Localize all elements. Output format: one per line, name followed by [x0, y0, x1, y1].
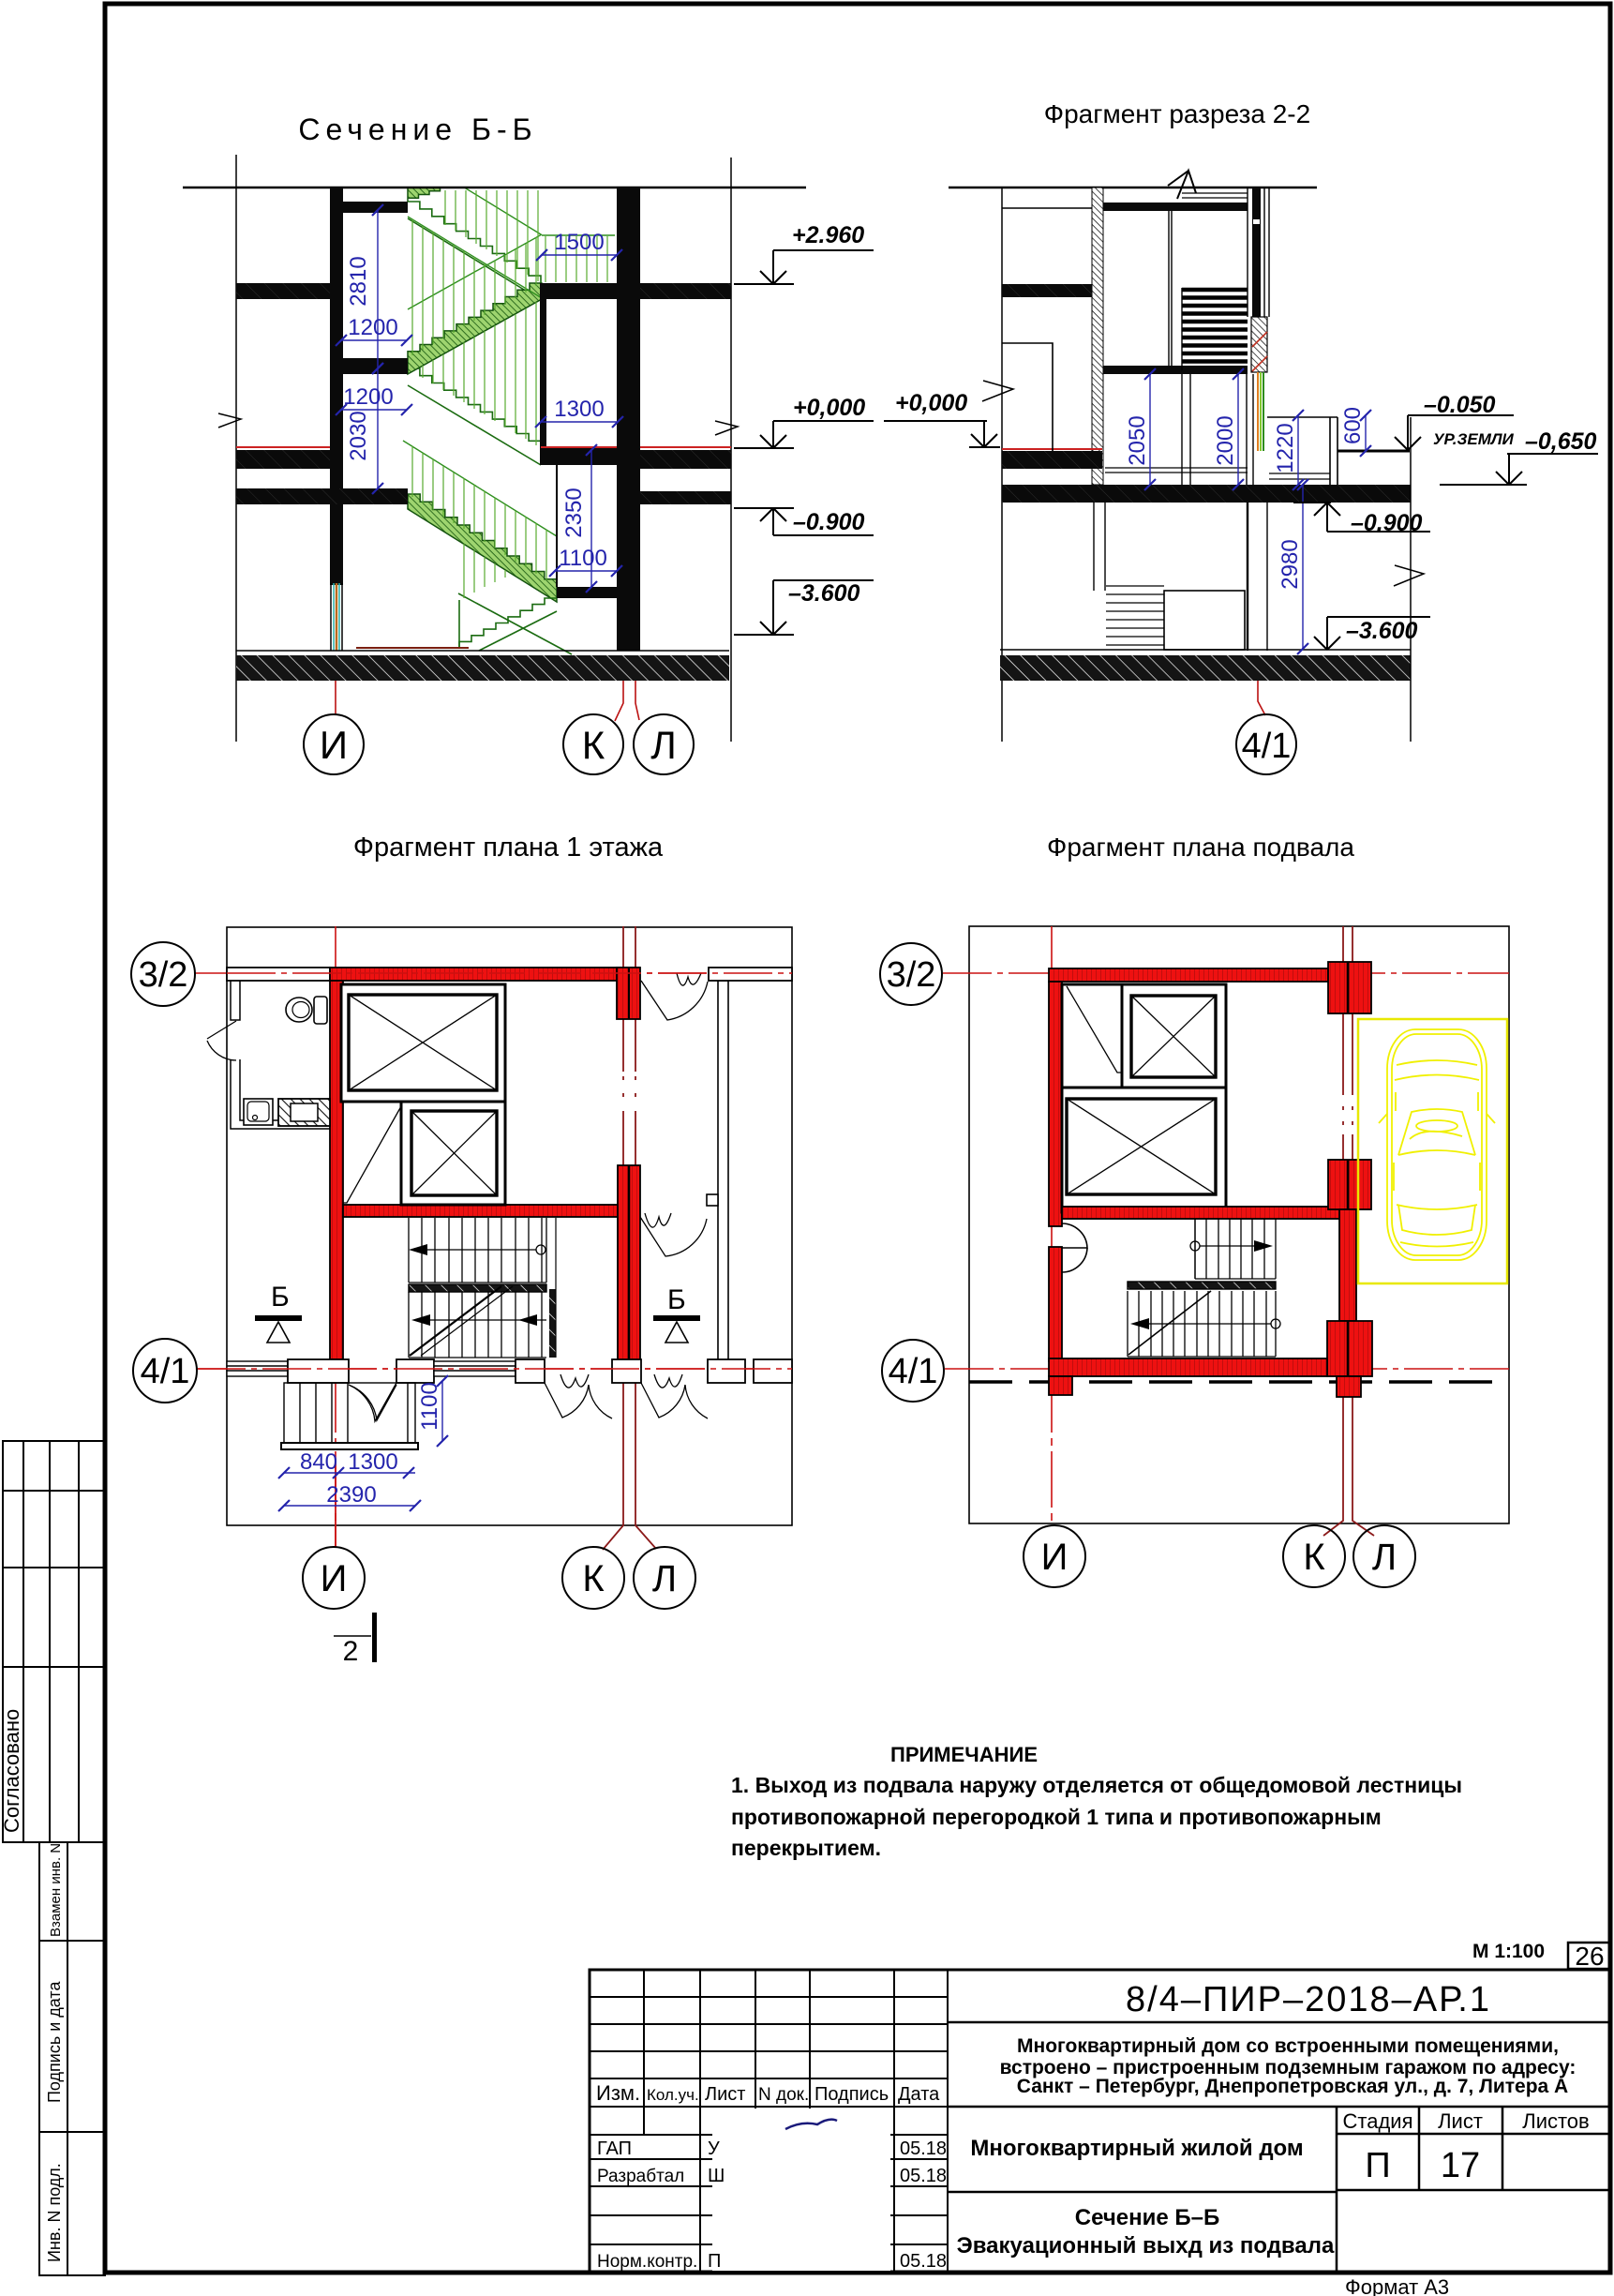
- svg-text:Формат А3: Формат А3: [1345, 2275, 1449, 2296]
- svg-text:Б: Б: [271, 1282, 290, 1313]
- svg-text:Фрагмент плана подвала: Фрагмент плана подвала: [1047, 833, 1354, 862]
- svg-text:600: 600: [1340, 407, 1366, 444]
- svg-text:1100: 1100: [559, 546, 607, 571]
- svg-text:ПРИМЕЧАНИЕ: ПРИМЕЧАНИЕ: [890, 1743, 1038, 1766]
- svg-text:Санкт – Петербург, Днепропетро: Санкт – Петербург, Днепропетровская ул.,…: [1017, 2076, 1568, 2097]
- svg-text:П: П: [708, 2251, 721, 2272]
- svg-text:Лист: Лист: [1438, 2109, 1483, 2133]
- svg-text:Сечение Б–Б: Сечение Б–Б: [1075, 2205, 1219, 2230]
- svg-text:+0,000: +0,000: [895, 390, 967, 416]
- svg-text:Ш: Ш: [708, 2166, 725, 2186]
- svg-text:2030: 2030: [346, 411, 371, 460]
- svg-text:Стадия: Стадия: [1343, 2109, 1413, 2133]
- svg-text:1300: 1300: [554, 397, 604, 422]
- svg-text:Л: Л: [652, 1558, 677, 1599]
- svg-text:1220: 1220: [1273, 423, 1298, 473]
- svg-text:1200: 1200: [348, 315, 397, 340]
- svg-text:05.18: 05.18: [900, 2166, 947, 2186]
- svg-text:Л: Л: [1372, 1537, 1397, 1578]
- svg-text:Изм.: Изм.: [596, 2081, 640, 2105]
- svg-text:4/1: 4/1: [141, 1352, 190, 1391]
- svg-text:Б: Б: [667, 1284, 686, 1315]
- svg-text:Инв. N подл.: Инв. N подл.: [45, 2163, 64, 2262]
- svg-text:3/2: 3/2: [139, 955, 188, 995]
- svg-text:–0.900: –0.900: [1351, 510, 1423, 536]
- svg-text:3/2: 3/2: [887, 955, 936, 995]
- svg-text:–0,650: –0,650: [1525, 428, 1597, 455]
- svg-text:–3.600: –3.600: [788, 580, 860, 607]
- svg-text:ГАП: ГАП: [597, 2138, 632, 2159]
- svg-text:перекрытием.: перекрытием.: [731, 1836, 881, 1860]
- svg-text:К: К: [582, 723, 605, 767]
- svg-text:05.18: 05.18: [900, 2138, 947, 2159]
- svg-text:Взамен инв. N: Взамен инв. N: [48, 1843, 64, 1937]
- svg-text:2350: 2350: [561, 488, 587, 537]
- svg-text:Сечение Б-Б: Сечение Б-Б: [298, 113, 537, 146]
- svg-text:+0,000: +0,000: [793, 395, 865, 421]
- svg-text:Листов: Листов: [1522, 2109, 1589, 2133]
- svg-text:1. Выход из подвала наружу отд: 1. Выход из подвала наружу отделяется от…: [731, 1773, 1462, 1797]
- svg-text:840: 840: [300, 1449, 337, 1475]
- svg-text:УР.ЗЕМЛИ: УР.ЗЕМЛИ: [1433, 430, 1515, 448]
- svg-text:1500: 1500: [554, 230, 604, 255]
- svg-text:И: И: [320, 723, 348, 767]
- svg-text:1100: 1100: [417, 1382, 442, 1431]
- svg-text:Л: Л: [650, 723, 677, 767]
- svg-text:2810: 2810: [346, 256, 371, 306]
- svg-text:1200: 1200: [343, 384, 393, 410]
- svg-text:Подпись: Подпись: [814, 2084, 889, 2105]
- svg-text:Эвакуационный выхд из подвала: Эвакуационный выхд из подвала: [957, 2233, 1335, 2258]
- svg-text:М 1:100: М 1:100: [1472, 1941, 1545, 1962]
- svg-text:Согласовано: Согласовано: [0, 1709, 23, 1833]
- svg-text:Подпись и дата: Подпись и дата: [45, 1981, 64, 2103]
- svg-text:И: И: [1041, 1537, 1069, 1578]
- svg-text:Норм.контр.: Норм.контр.: [597, 2252, 697, 2272]
- svg-text:N док.: N док.: [758, 2085, 809, 2105]
- svg-text:Фрагмент плана 1 этажа: Фрагмент плана 1 этажа: [353, 833, 664, 863]
- svg-text:4/1: 4/1: [1242, 727, 1292, 766]
- svg-text:Дата: Дата: [898, 2084, 940, 2105]
- svg-text:Многоквартирный дом со встроен: Многоквартирный дом со встроенными помещ…: [1017, 2035, 1559, 2057]
- svg-text:Фрагмент разреза 2-2: Фрагмент разреза 2-2: [1044, 99, 1310, 128]
- svg-text:05.18: 05.18: [900, 2251, 947, 2272]
- svg-text:У: У: [708, 2138, 720, 2159]
- svg-text:1300: 1300: [348, 1449, 397, 1475]
- svg-text:противопожарной перегородкой 1: противопожарной перегородкой 1 типа и пр…: [731, 1805, 1382, 1829]
- svg-text:И: И: [321, 1558, 348, 1599]
- svg-text:2980: 2980: [1278, 539, 1303, 589]
- svg-text:2: 2: [343, 1636, 359, 1667]
- svg-text:К: К: [582, 1558, 605, 1599]
- svg-text:Разрабтал: Разрабтал: [597, 2167, 684, 2186]
- svg-text:8/4–ПИР–2018–АР.1: 8/4–ПИР–2018–АР.1: [1126, 1980, 1491, 2019]
- svg-text:–0.900: –0.900: [793, 509, 865, 535]
- svg-text:4/1: 4/1: [889, 1352, 938, 1391]
- svg-text:2390: 2390: [326, 1482, 376, 1508]
- svg-text:Многоквартирный жилой дом: Многоквартирный жилой дом: [970, 2136, 1303, 2161]
- svg-text:2000: 2000: [1213, 415, 1238, 465]
- svg-text:17: 17: [1441, 2146, 1480, 2185]
- svg-text:26: 26: [1575, 1942, 1604, 1971]
- svg-text:–0.050: –0.050: [1424, 392, 1496, 418]
- svg-text:2050: 2050: [1125, 415, 1150, 465]
- svg-text:П: П: [1365, 2146, 1390, 2185]
- svg-text:Лист: Лист: [705, 2084, 745, 2105]
- svg-text:–3.600: –3.600: [1346, 618, 1418, 644]
- svg-text:К: К: [1303, 1537, 1325, 1578]
- svg-text:+2.960: +2.960: [792, 222, 864, 248]
- svg-text:Кол.уч.: Кол.уч.: [647, 2086, 699, 2104]
